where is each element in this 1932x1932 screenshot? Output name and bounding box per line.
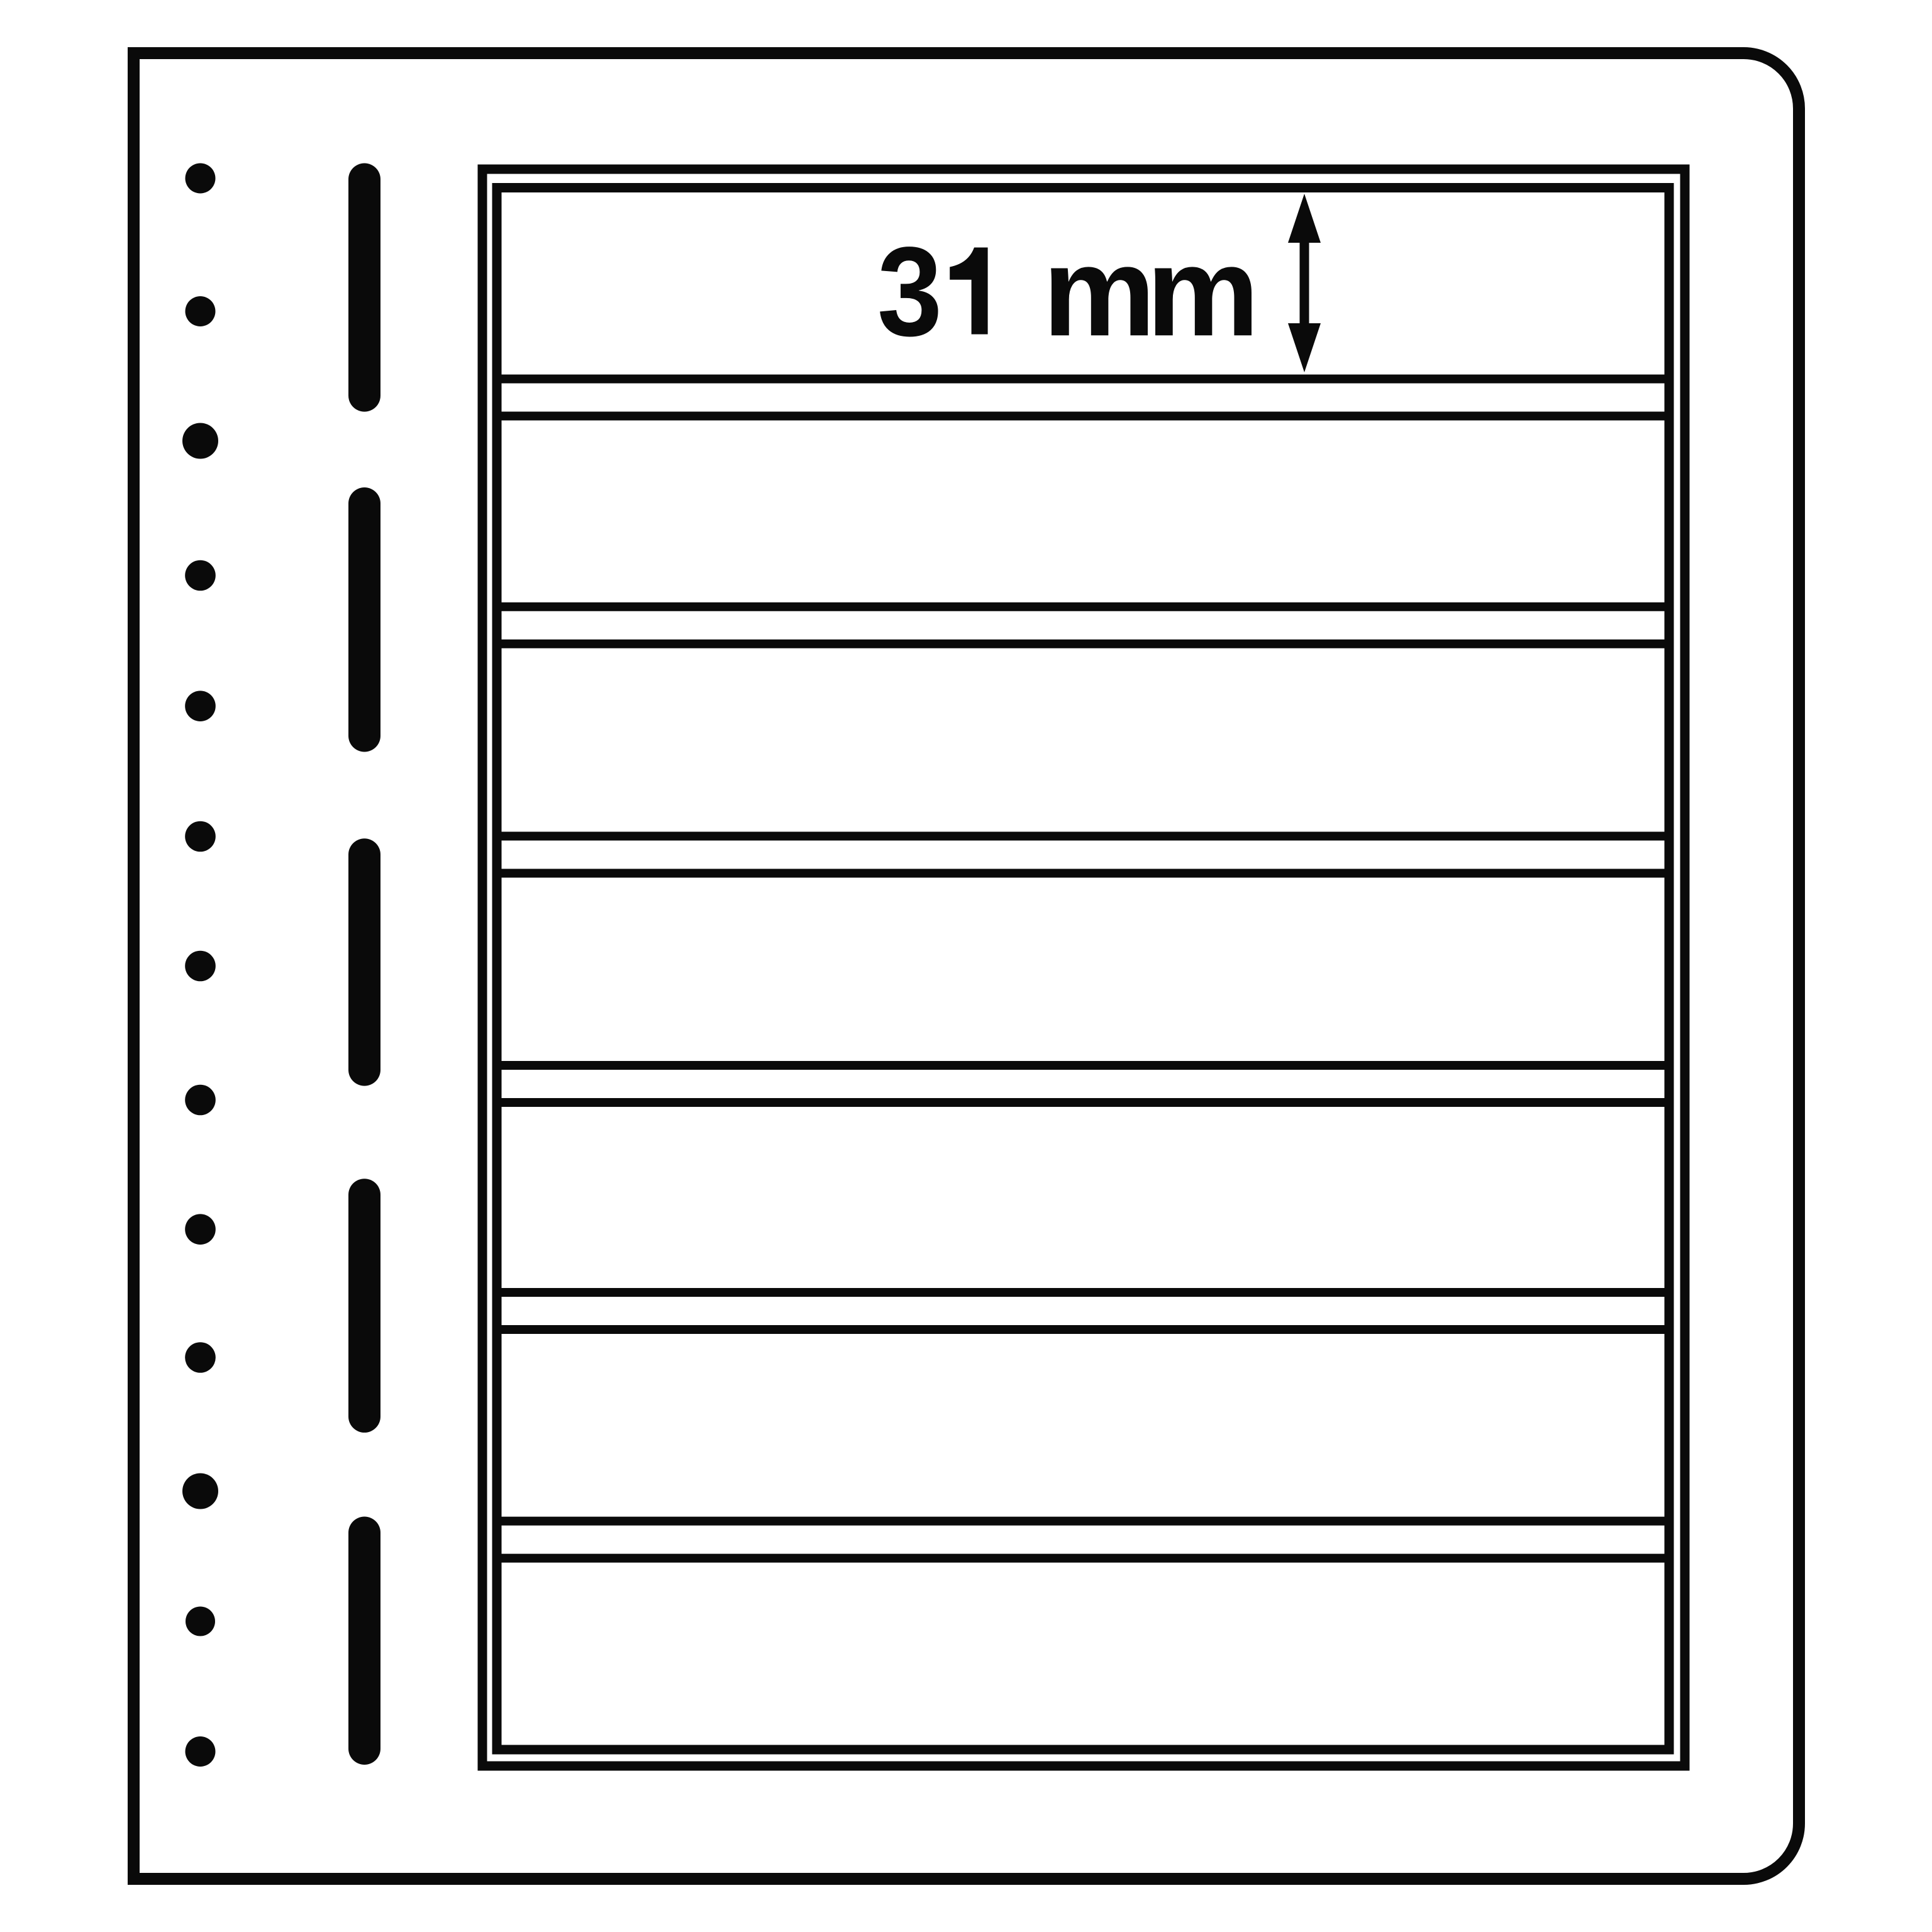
svg-text:m: m	[1043, 220, 1156, 362]
svg-text:3: 3	[877, 221, 942, 363]
svg-text:m: m	[1146, 220, 1260, 362]
